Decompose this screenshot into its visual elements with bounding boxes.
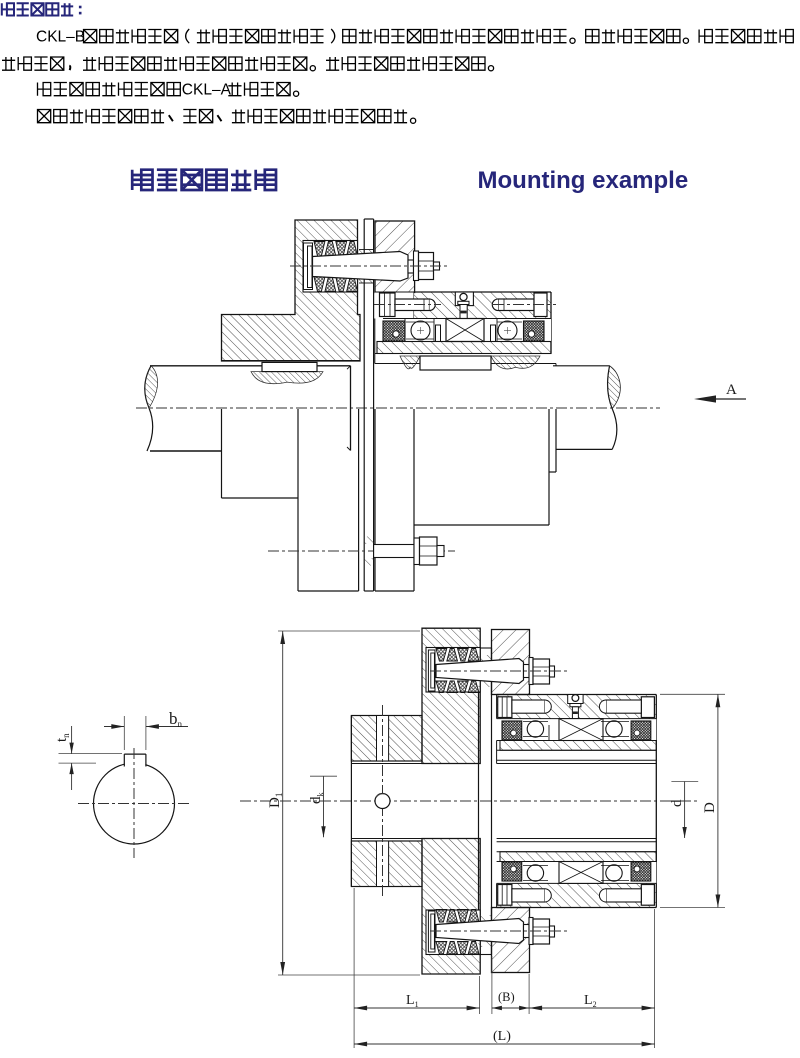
svg-text:A: A bbox=[726, 382, 737, 398]
svg-text:(B): (B) bbox=[498, 990, 515, 1004]
svg-text:Mounting example: Mounting example bbox=[478, 167, 689, 194]
svg-text:(L): (L) bbox=[493, 1029, 511, 1044]
svg-text:D: D bbox=[702, 802, 718, 813]
svg-text:CKL–A: CKL–A bbox=[182, 82, 232, 99]
svg-text:CKL–B: CKL–B bbox=[36, 29, 85, 46]
svg-text:d: d bbox=[669, 799, 685, 807]
